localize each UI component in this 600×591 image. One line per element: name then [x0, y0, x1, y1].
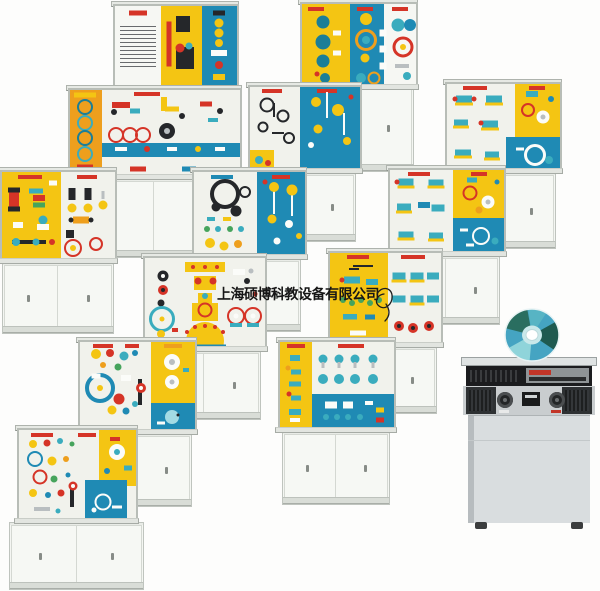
model-part	[467, 177, 477, 182]
model-part	[409, 280, 424, 283]
model-part	[144, 146, 150, 152]
model-part	[401, 255, 425, 259]
model-part	[455, 102, 473, 105]
model-part	[316, 55, 329, 68]
model-part	[176, 16, 190, 32]
model-part	[463, 86, 487, 90]
model-part	[37, 224, 49, 230]
door-handle	[39, 553, 42, 560]
model-part	[291, 369, 301, 374]
display-cabinet-12	[278, 340, 396, 431]
label-chip	[499, 410, 509, 413]
model-part	[491, 238, 498, 245]
model-part	[8, 187, 20, 192]
model-part	[397, 324, 401, 328]
model-part	[207, 217, 215, 221]
model-part	[200, 101, 212, 106]
model-part	[290, 418, 300, 422]
model-part	[272, 175, 290, 179]
model-part	[248, 268, 253, 273]
model-part	[524, 144, 546, 166]
model-part	[165, 106, 179, 111]
model-part	[481, 127, 499, 130]
model-part	[466, 243, 474, 246]
model-part	[161, 274, 165, 278]
model-part	[134, 92, 160, 96]
sliding-door-right	[358, 87, 412, 167]
model-part	[357, 414, 363, 420]
display-panel	[257, 172, 305, 256]
model-part	[175, 44, 184, 53]
console-body	[468, 415, 590, 523]
door-handle	[27, 295, 30, 302]
model-part	[233, 269, 245, 275]
display-cabinet-7	[192, 170, 307, 258]
model-part	[45, 492, 51, 498]
display-cabinet-4	[248, 85, 362, 172]
model-part	[69, 442, 74, 447]
model-part	[203, 324, 207, 328]
model-part	[516, 147, 524, 150]
control-console	[461, 357, 597, 529]
model-part	[239, 186, 251, 198]
model-part	[311, 97, 321, 107]
model-part	[221, 330, 225, 334]
model-part	[347, 255, 369, 259]
model-part	[392, 295, 405, 302]
model-part	[354, 362, 357, 368]
left-speaker	[466, 387, 496, 414]
model-part	[259, 98, 274, 113]
model-part	[357, 7, 373, 11]
sliding-door-right	[57, 265, 112, 329]
model-part	[227, 226, 233, 232]
model-part	[283, 132, 295, 144]
model-part	[326, 92, 328, 118]
model-part	[223, 217, 231, 221]
door-handle	[331, 204, 334, 211]
model-part	[290, 355, 300, 361]
model-part	[132, 350, 138, 356]
model-part	[258, 121, 269, 132]
model-part	[396, 210, 412, 213]
model-part	[29, 189, 43, 194]
model-part	[343, 137, 351, 145]
model-part	[454, 156, 472, 159]
model-part	[403, 72, 411, 80]
model-part	[409, 302, 424, 305]
console-equipment-panel	[466, 366, 592, 386]
cd-hole	[526, 330, 538, 341]
model-part	[325, 401, 337, 408]
model-part	[110, 437, 120, 441]
model-part	[379, 46, 386, 53]
body-shade	[468, 416, 474, 523]
model-part	[360, 13, 372, 25]
cd-disc	[502, 307, 562, 368]
model-part	[365, 401, 373, 405]
model-part	[205, 238, 215, 248]
model-part	[360, 54, 369, 63]
body-seam	[468, 440, 590, 441]
cabinet-base	[3, 326, 113, 333]
model-part	[400, 44, 406, 50]
model-part	[391, 18, 404, 31]
model-part	[391, 280, 406, 283]
model-part	[289, 409, 301, 415]
sliding-door-right	[76, 525, 143, 585]
model-part	[350, 331, 366, 336]
model-part	[195, 146, 201, 152]
model-part	[286, 185, 297, 196]
model-part	[265, 160, 271, 166]
cabinet-base	[10, 582, 143, 589]
model-part	[353, 265, 373, 267]
model-part	[462, 186, 477, 201]
model-part	[427, 295, 439, 302]
model-part	[478, 120, 483, 125]
display-cabinet-11	[78, 340, 197, 433]
model-part	[397, 185, 414, 188]
display-panel	[2, 172, 61, 260]
model-part	[74, 93, 96, 98]
model-part	[267, 215, 276, 224]
door-handle	[387, 125, 390, 132]
model-part	[404, 19, 416, 31]
model-part	[397, 237, 414, 240]
sliding-door-right	[502, 175, 555, 244]
model-part	[263, 180, 268, 185]
display-cabinet-6	[0, 170, 117, 262]
model-part	[70, 489, 74, 507]
model-part	[71, 484, 75, 488]
model-part	[308, 7, 324, 11]
model-part	[78, 433, 96, 437]
display-cabinet-2	[300, 2, 418, 88]
door-handle	[411, 377, 414, 384]
model-part	[89, 218, 94, 223]
model-part	[296, 233, 302, 239]
intro-text-lines	[120, 26, 156, 70]
model-part	[308, 142, 314, 148]
model-part	[214, 18, 223, 27]
model-part	[203, 265, 207, 269]
door-handle	[87, 295, 90, 302]
model-part	[376, 407, 384, 412]
model-part	[349, 268, 359, 270]
model-part	[169, 359, 175, 365]
model-part	[318, 374, 328, 384]
model-part	[119, 352, 128, 361]
model-part	[130, 167, 146, 172]
door-handle	[165, 467, 168, 474]
model-part	[338, 344, 364, 348]
model-part	[485, 102, 503, 105]
model-part	[29, 489, 37, 497]
model-part	[334, 414, 340, 420]
model-part	[8, 206, 20, 211]
model-part	[452, 97, 457, 102]
model-part	[410, 272, 423, 279]
model-part	[333, 51, 341, 56]
model-part	[66, 230, 74, 238]
model-part	[164, 344, 182, 348]
console-stereo-deck	[526, 368, 589, 383]
model-part	[193, 325, 197, 329]
model-part	[115, 147, 127, 151]
model-part	[211, 50, 227, 56]
model-part	[349, 94, 354, 99]
model-part	[106, 349, 114, 357]
model-part	[379, 29, 386, 36]
model-part	[392, 7, 408, 11]
model-part	[170, 380, 175, 385]
model-part	[410, 295, 423, 302]
model-part	[285, 220, 293, 228]
model-part	[529, 86, 545, 90]
control-knob	[497, 392, 513, 408]
model-part	[51, 475, 58, 482]
model-part	[338, 362, 341, 368]
model-part	[376, 418, 384, 423]
model-part	[247, 323, 259, 327]
model-part	[124, 465, 132, 470]
model-part	[460, 228, 468, 231]
model-part	[314, 71, 319, 76]
display-cabinet-5	[445, 82, 562, 172]
slot-opening	[525, 395, 537, 398]
model-part	[427, 272, 439, 279]
sliding-door-right	[335, 434, 388, 500]
sliding-door-right	[445, 258, 498, 320]
model-part	[114, 363, 121, 370]
model-part	[166, 21, 171, 66]
door-handle	[306, 465, 309, 472]
model-part	[287, 344, 305, 348]
model-part	[379, 62, 386, 69]
model-part	[183, 368, 189, 372]
model-part	[112, 506, 122, 509]
model-part	[230, 323, 242, 327]
model-part	[314, 124, 323, 133]
model-part	[58, 490, 65, 497]
model-part	[411, 326, 415, 330]
model-part	[89, 237, 103, 251]
model-part	[472, 97, 477, 102]
model-part	[167, 147, 177, 151]
speaker-grille	[469, 390, 493, 411]
model-part	[484, 157, 500, 160]
model-part	[186, 43, 193, 50]
model-part	[315, 34, 330, 49]
model-part	[545, 156, 553, 164]
model-part	[198, 303, 213, 318]
model-part	[66, 473, 71, 478]
model-part	[215, 265, 219, 269]
model-part	[208, 118, 218, 122]
display-cabinet-13	[17, 428, 138, 522]
door-handle	[111, 553, 114, 560]
model-part	[125, 344, 139, 348]
model-part	[27, 451, 43, 467]
display-bottom-rail	[275, 427, 397, 433]
model-part	[165, 410, 179, 424]
model-part	[83, 204, 92, 213]
model-part	[204, 226, 210, 232]
model-part	[63, 456, 69, 462]
label-chip	[551, 410, 561, 413]
model-part	[31, 433, 53, 437]
model-part	[367, 71, 380, 84]
product-collage: 上海硕博科教设备有限公司	[0, 0, 600, 591]
sliding-door-right	[303, 175, 354, 237]
model-part	[408, 172, 430, 176]
model-part	[91, 508, 96, 513]
model-part	[212, 203, 221, 212]
model-part	[234, 313, 239, 318]
model-part	[316, 16, 329, 29]
model-part	[362, 36, 370, 44]
model-part	[285, 366, 290, 371]
sliding-door-left	[284, 434, 337, 500]
model-part	[215, 226, 221, 232]
knob-marker	[503, 398, 507, 402]
display-bottom-rail	[0, 258, 118, 264]
display-bottom-rail	[14, 518, 139, 524]
display-cabinet-6-storage	[2, 262, 114, 334]
model-part	[431, 205, 444, 212]
model-part	[97, 385, 103, 391]
model-part	[269, 182, 279, 192]
model-part	[130, 108, 140, 113]
model-part	[343, 113, 345, 135]
model-part	[345, 414, 351, 420]
console-button-rows	[470, 370, 520, 382]
model-part	[368, 374, 378, 384]
console-foot	[475, 522, 487, 529]
model-part	[55, 509, 60, 514]
model-part	[161, 288, 165, 292]
model-part	[77, 99, 93, 115]
model-part	[392, 272, 405, 279]
model-part	[77, 146, 93, 162]
model-part	[191, 265, 195, 269]
model-part	[84, 188, 91, 200]
model-part	[104, 468, 110, 474]
model-part	[213, 10, 225, 15]
model-part	[92, 373, 101, 378]
speaker-grille	[565, 390, 589, 411]
model-part	[179, 113, 185, 119]
model-part	[215, 61, 223, 69]
model-part	[214, 28, 223, 37]
model-part	[277, 110, 290, 123]
model-part	[238, 226, 244, 232]
model-part	[69, 188, 76, 200]
model-part	[49, 239, 55, 245]
model-part	[210, 278, 217, 285]
model-part	[34, 507, 50, 511]
model-part	[395, 64, 409, 68]
model-part	[139, 386, 143, 390]
display-cabinet-13-storage	[9, 522, 144, 590]
model-part	[185, 330, 189, 334]
model-part	[95, 494, 112, 511]
model-part	[123, 408, 130, 415]
model-part	[333, 30, 341, 35]
cabinet-base	[283, 497, 389, 504]
model-part	[231, 205, 242, 216]
model-part	[521, 103, 535, 117]
model-part	[194, 278, 201, 285]
model-part	[365, 314, 375, 319]
model-part	[169, 13, 175, 19]
model-part	[526, 91, 538, 97]
model-part	[29, 440, 37, 448]
model-part	[77, 175, 97, 179]
model-part	[12, 238, 20, 246]
model-part	[49, 180, 57, 185]
model-part	[101, 191, 104, 199]
model-part	[77, 130, 93, 146]
model-part	[91, 349, 101, 359]
model-part	[251, 313, 256, 318]
model-part	[33, 203, 45, 208]
model-part	[418, 202, 430, 208]
model-part	[121, 375, 131, 381]
model-part	[172, 328, 178, 332]
model-part	[486, 199, 491, 204]
model-part	[291, 395, 301, 400]
door-handle	[233, 382, 236, 389]
model-part	[343, 401, 353, 408]
display-cabinet-12-storage	[282, 431, 390, 505]
model-part	[471, 172, 487, 176]
model-part	[274, 237, 281, 244]
model-part	[33, 469, 48, 484]
model-part	[114, 449, 120, 455]
model-part	[472, 227, 490, 245]
model-part	[68, 218, 73, 223]
model-part	[13, 222, 23, 228]
knob-marker	[555, 398, 559, 402]
model-part	[323, 414, 329, 420]
cd-disc-svg	[502, 307, 562, 363]
model-part	[114, 393, 125, 404]
model-part	[77, 115, 93, 131]
model-part	[234, 240, 242, 248]
model-part	[47, 456, 56, 465]
model-part	[475, 206, 482, 213]
model-part	[164, 128, 170, 134]
door-handle	[474, 287, 477, 294]
model-part	[541, 114, 546, 119]
right-speaker	[562, 387, 592, 414]
model-part	[215, 147, 225, 151]
model-part	[112, 102, 130, 108]
model-part	[159, 317, 164, 322]
model-part	[272, 132, 284, 134]
model-part	[372, 362, 375, 368]
door-handle	[530, 208, 533, 215]
model-part	[322, 362, 325, 368]
model-part	[342, 320, 358, 323]
model-part	[32, 239, 39, 246]
model-part	[217, 108, 223, 114]
model-part	[135, 127, 151, 143]
model-part	[213, 325, 217, 329]
model-part	[428, 238, 444, 241]
